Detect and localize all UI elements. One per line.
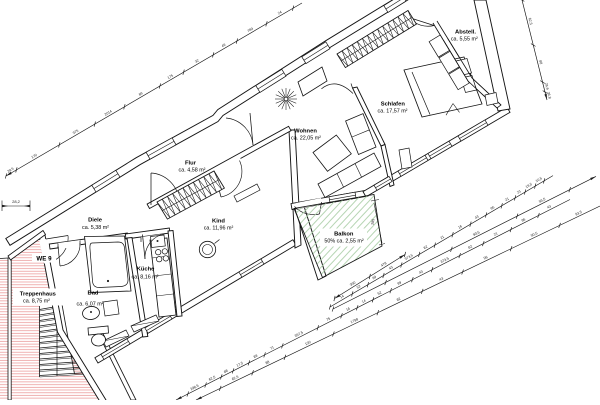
svg-text:Flur: Flur xyxy=(185,161,197,167)
svg-text:ca. 5,55 m²: ca. 5,55 m² xyxy=(451,37,478,43)
svg-text:ca. 6,07 m²: ca. 6,07 m² xyxy=(77,302,104,308)
svg-text:ca. 8,16 m²: ca. 8,16 m² xyxy=(132,275,159,281)
svg-text:WE 9: WE 9 xyxy=(36,256,52,263)
svg-text:Küche: Küche xyxy=(137,267,155,273)
svg-text:Balkon: Balkon xyxy=(334,232,354,238)
svg-text:ca. 11,96 m²: ca. 11,96 m² xyxy=(204,226,234,232)
svg-text:ca. 22,05 m²: ca. 22,05 m² xyxy=(291,136,321,142)
svg-text:Abstell.: Abstell. xyxy=(455,30,476,36)
svg-text:ca. 4,58 m²: ca. 4,58 m² xyxy=(179,168,206,174)
svg-text:ca. 17,57 m²: ca. 17,57 m² xyxy=(378,109,408,115)
svg-text:Wohnen: Wohnen xyxy=(294,129,317,135)
svg-text:ca. 8,75 m²: ca. 8,75 m² xyxy=(23,299,50,305)
svg-text:Diele: Diele xyxy=(88,218,103,224)
svg-text:Kind: Kind xyxy=(212,219,225,225)
svg-text:28,2: 28,2 xyxy=(12,199,21,204)
svg-text:Treppenhaus: Treppenhaus xyxy=(20,292,56,298)
svg-text:50% ca. 2,55 m²: 50% ca. 2,55 m² xyxy=(324,239,363,245)
svg-text:ca. 5,38 m²: ca. 5,38 m² xyxy=(82,225,109,231)
svg-text:Schlafen: Schlafen xyxy=(381,102,406,108)
svg-text:Bad: Bad xyxy=(88,291,99,297)
